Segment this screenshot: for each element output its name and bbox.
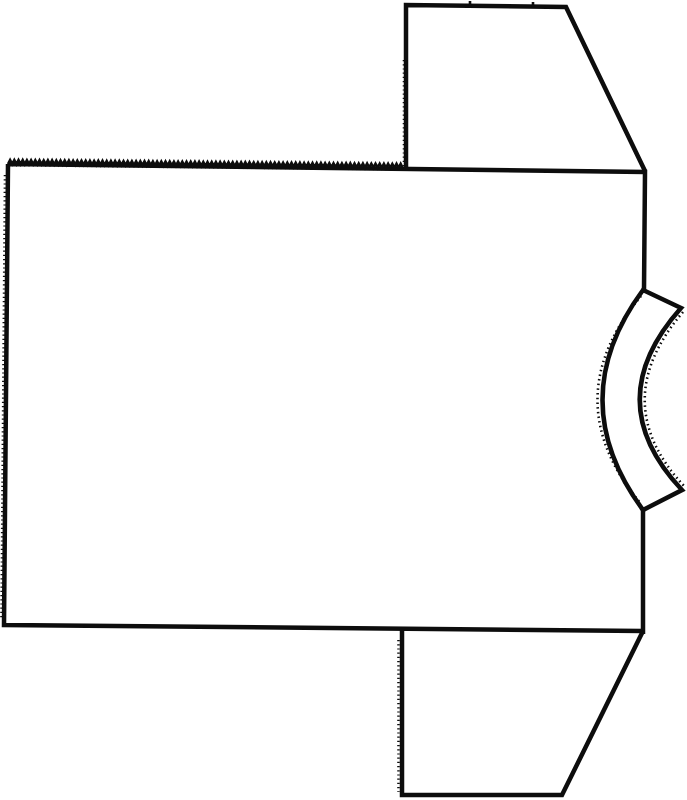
tshirt-pattern-diagram [0, 0, 687, 800]
pattern-sheet [0, 0, 687, 800]
canvas-background [0, 0, 687, 800]
